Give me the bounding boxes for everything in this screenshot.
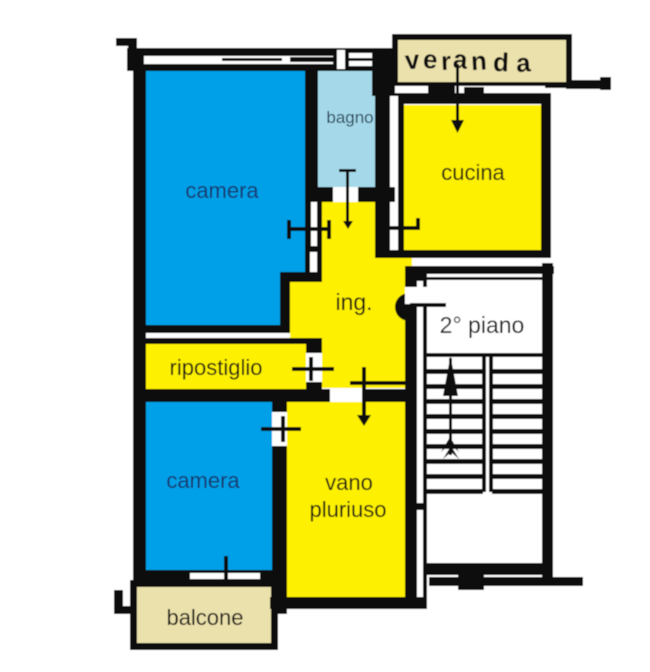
svg-text:e: e — [422, 44, 439, 75]
svg-text:cucina: cucina — [441, 160, 505, 185]
svg-text:bagno: bagno — [326, 108, 373, 127]
svg-text:d: d — [493, 47, 510, 78]
svg-text:ripostiglio: ripostiglio — [170, 355, 263, 380]
svg-text:n: n — [470, 45, 487, 76]
svg-text:camera: camera — [166, 468, 240, 493]
svg-text:camera: camera — [185, 178, 259, 203]
svg-text:vano: vano — [325, 470, 373, 495]
svg-text:2° piano: 2° piano — [440, 312, 525, 338]
svg-text:a: a — [515, 47, 532, 78]
svg-text:ing.: ing. — [335, 289, 372, 315]
svg-text:balcone: balcone — [166, 605, 243, 630]
svg-text:r: r — [440, 46, 451, 76]
svg-text:pluriuso: pluriuso — [309, 497, 386, 522]
